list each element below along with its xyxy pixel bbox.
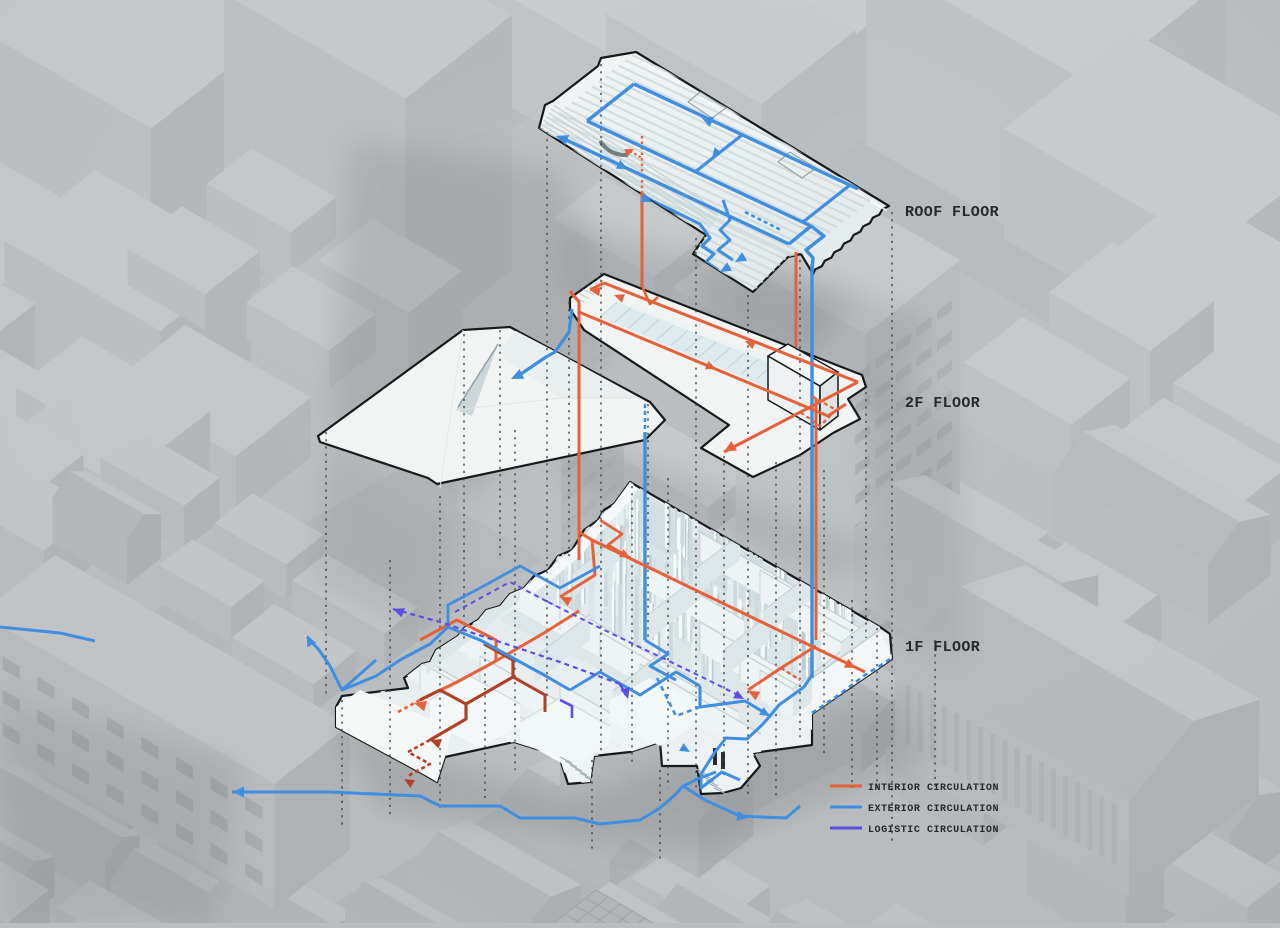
svg-text:1F FLOOR: 1F FLOOR <box>905 639 980 656</box>
svg-text:LOGISTIC CIRCULATION: LOGISTIC CIRCULATION <box>868 825 999 836</box>
svg-text:ROOF FLOOR: ROOF FLOOR <box>905 204 999 221</box>
svg-text:EXTERIOR CIRCULATION: EXTERIOR CIRCULATION <box>868 804 999 815</box>
svg-text:INTERIOR CIRCULATION: INTERIOR CIRCULATION <box>868 783 999 794</box>
svg-text:2F FLOOR: 2F FLOOR <box>905 395 980 412</box>
